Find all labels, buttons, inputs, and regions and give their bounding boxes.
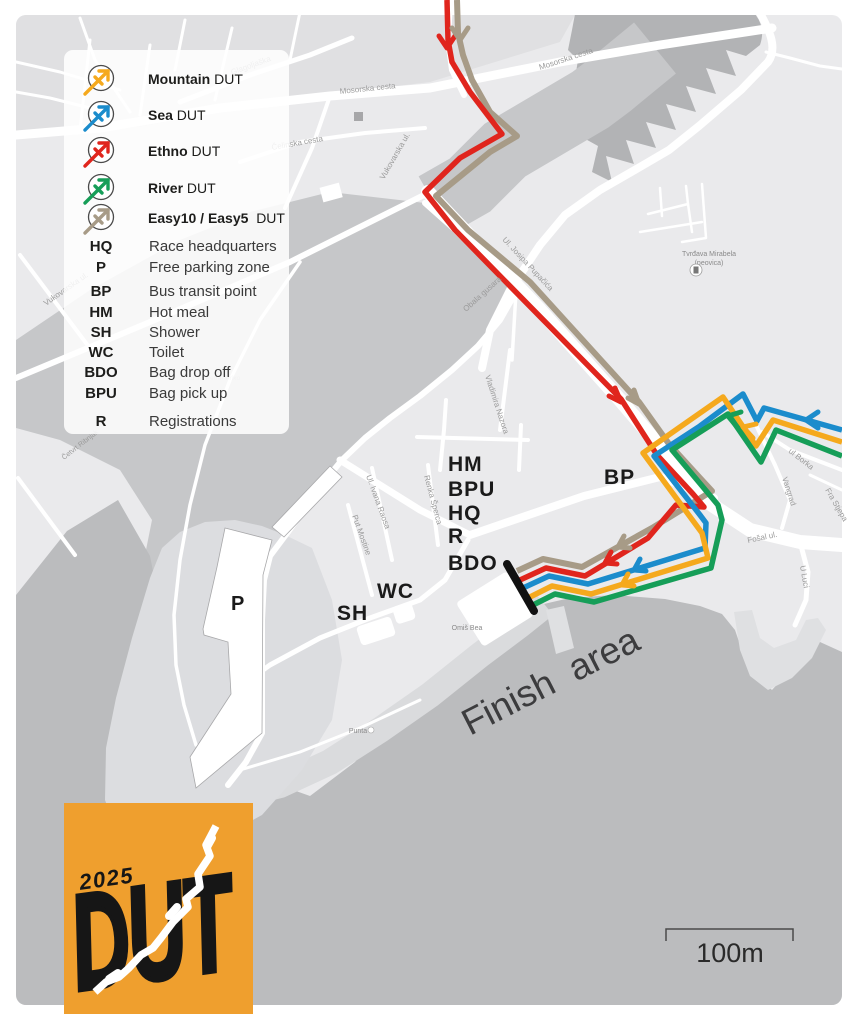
svg-text:SH: SH [337, 602, 368, 625]
svg-text:HQ: HQ [90, 238, 113, 255]
svg-text:Omiš Bea: Omiš Bea [452, 625, 483, 632]
svg-text:HQ: HQ [448, 502, 482, 525]
svg-text:Tvrđava Mirabela: Tvrđava Mirabela [682, 251, 736, 258]
svg-text:SH: SH [91, 324, 112, 341]
svg-text:Bus transit point: Bus transit point [149, 283, 257, 300]
svg-text:Bag drop off: Bag drop off [149, 364, 231, 381]
svg-text:Race headquarters: Race headquarters [149, 238, 277, 255]
svg-text:BDO: BDO [448, 552, 498, 575]
svg-text:Hot meal: Hot meal [149, 304, 209, 321]
svg-text:Ethno DUT: Ethno DUT [148, 143, 221, 159]
svg-text:Mountain DUT: Mountain DUT [148, 71, 243, 87]
svg-text:BPU: BPU [85, 385, 117, 402]
svg-text:BDO: BDO [84, 364, 118, 381]
svg-text:Bag pick up: Bag pick up [149, 385, 227, 402]
svg-text:P: P [231, 593, 245, 615]
svg-text:Shower: Shower [149, 324, 200, 341]
svg-text:Sea DUT: Sea DUT [148, 107, 206, 123]
svg-text:HM: HM [89, 304, 112, 321]
svg-text:Free parking zone: Free parking zone [149, 259, 270, 276]
svg-text:P: P [96, 259, 106, 276]
svg-text:Registrations: Registrations [149, 413, 237, 430]
svg-text:R: R [448, 525, 464, 548]
svg-text:River DUT: River DUT [148, 180, 216, 196]
svg-text:Punta: Punta [349, 728, 367, 735]
svg-text:100m: 100m [696, 938, 764, 968]
svg-text:WC: WC [89, 344, 114, 361]
svg-text:Easy10 / Easy5 DUT: Easy10 / Easy5 DUT [148, 210, 285, 226]
svg-text:WC: WC [377, 580, 414, 603]
svg-text:Toilet: Toilet [149, 344, 185, 361]
svg-text:BP: BP [91, 283, 112, 300]
svg-text:BPU: BPU [448, 478, 495, 501]
svg-text:HM: HM [448, 453, 483, 476]
svg-text:DUT: DUT [61, 845, 248, 1019]
svg-text:BP: BP [604, 466, 635, 489]
svg-text:R: R [96, 413, 107, 430]
